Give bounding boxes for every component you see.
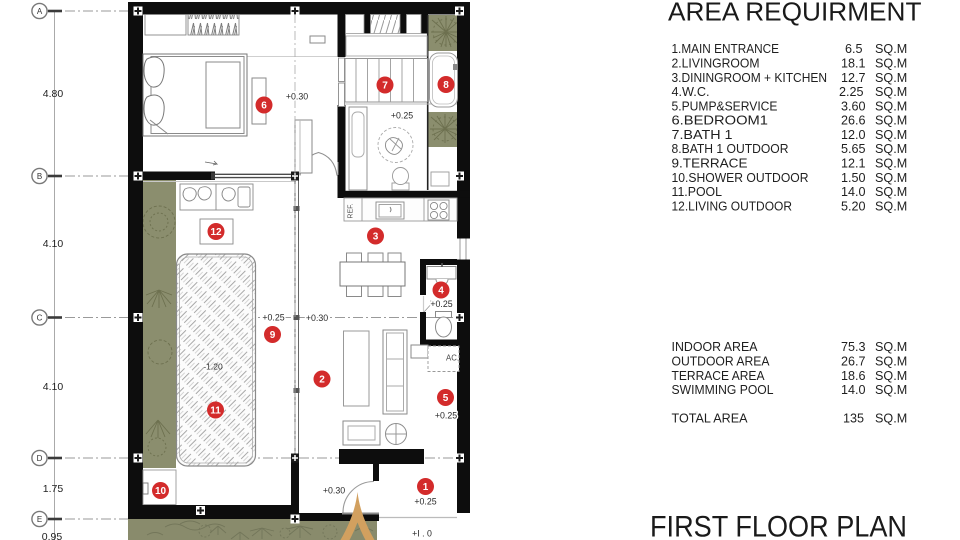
svg-text:18.1: 18.1 xyxy=(841,56,866,70)
svg-text:0.95: 0.95 xyxy=(42,531,63,540)
svg-text:FIRST FLOOR PLAN: FIRST FLOOR PLAN xyxy=(650,511,907,540)
svg-text:SQ.M: SQ.M xyxy=(875,99,907,113)
svg-text:SQ.M: SQ.M xyxy=(875,56,907,70)
svg-text:10.SHOWER OUTDOOR: 10.SHOWER OUTDOOR xyxy=(672,171,809,185)
svg-text:2.LIVINGROOM: 2.LIVINGROOM xyxy=(672,56,760,70)
svg-text:5.65: 5.65 xyxy=(841,142,866,156)
svg-text:5: 5 xyxy=(443,393,449,404)
svg-text:2.25: 2.25 xyxy=(839,85,864,99)
svg-text:14.0: 14.0 xyxy=(841,185,866,199)
svg-text:10: 10 xyxy=(155,486,167,497)
svg-text:6.BEDROOM1: 6.BEDROOM1 xyxy=(672,113,769,127)
svg-text:12.LIVING OUTDOOR: 12.LIVING OUTDOOR xyxy=(672,199,793,213)
svg-text:SQ.M: SQ.M xyxy=(875,128,907,142)
svg-text:A: A xyxy=(37,7,43,16)
svg-text:+0.25: +0.25 xyxy=(430,299,452,309)
svg-text:SQ.M: SQ.M xyxy=(875,42,907,56)
svg-text:7: 7 xyxy=(382,81,388,92)
svg-text:5.PUMP&SERVICE: 5.PUMP&SERVICE xyxy=(672,99,778,113)
svg-text:+0.25: +0.25 xyxy=(435,411,457,421)
svg-text:SQ.M: SQ.M xyxy=(875,171,907,185)
svg-text:D: D xyxy=(37,454,43,463)
svg-text:+0.30: +0.30 xyxy=(323,485,345,495)
svg-text:SQ.M: SQ.M xyxy=(875,383,907,397)
svg-text:12.0: 12.0 xyxy=(841,128,866,142)
svg-text:1.MAIN ENTRANCE: 1.MAIN ENTRANCE xyxy=(672,42,780,56)
svg-text:9.TERRACE: 9.TERRACE xyxy=(672,156,748,170)
svg-text:E: E xyxy=(37,515,42,524)
svg-text:6.5: 6.5 xyxy=(845,42,863,56)
svg-text:14.0: 14.0 xyxy=(841,383,866,397)
svg-text:SQ.M: SQ.M xyxy=(875,156,907,170)
svg-text:3: 3 xyxy=(373,232,379,243)
svg-text:1.75: 1.75 xyxy=(43,483,64,495)
svg-text:2: 2 xyxy=(319,375,325,386)
svg-text:18.6: 18.6 xyxy=(841,369,866,383)
svg-text:SQ.M: SQ.M xyxy=(875,113,907,127)
svg-text:+I . 0: +I . 0 xyxy=(412,529,432,539)
svg-text:3.60: 3.60 xyxy=(841,99,866,113)
svg-text:4.80: 4.80 xyxy=(43,88,64,100)
svg-text:OUTDOOR AREA: OUTDOOR AREA xyxy=(672,354,771,368)
svg-text:SWIMMING POOL: SWIMMING POOL xyxy=(672,383,774,397)
svg-text:12.7: 12.7 xyxy=(841,71,866,85)
svg-text:TOTAL AREA: TOTAL AREA xyxy=(672,412,749,426)
svg-text:SQ.M: SQ.M xyxy=(875,369,907,383)
svg-text:4: 4 xyxy=(438,286,444,297)
svg-text:+0.30: +0.30 xyxy=(306,313,328,323)
svg-text:6: 6 xyxy=(261,101,267,112)
svg-text:C: C xyxy=(37,313,43,322)
svg-text:SQ.M: SQ.M xyxy=(875,354,907,368)
svg-text:7.BATH 1: 7.BATH 1 xyxy=(672,128,733,142)
svg-text:+0.25: +0.25 xyxy=(262,313,284,323)
svg-text:11: 11 xyxy=(210,406,221,417)
svg-text:9: 9 xyxy=(270,330,276,341)
svg-text:4.10: 4.10 xyxy=(43,381,64,393)
svg-text:1: 1 xyxy=(423,482,429,493)
svg-text:4.W.C.: 4.W.C. xyxy=(672,85,710,99)
svg-text:+0.25: +0.25 xyxy=(414,497,436,507)
svg-text:26.7: 26.7 xyxy=(841,354,866,368)
svg-text:-1.20: -1.20 xyxy=(203,362,223,372)
svg-text:AREA REQUIRMENT: AREA REQUIRMENT xyxy=(668,0,922,27)
svg-text:SQ.M: SQ.M xyxy=(875,340,907,354)
svg-text:INDOOR AREA: INDOOR AREA xyxy=(672,340,759,354)
svg-text:135: 135 xyxy=(843,412,864,426)
svg-text:REF.: REF. xyxy=(348,203,355,218)
svg-text:3.DININGROOM + KITCHEN: 3.DININGROOM + KITCHEN xyxy=(672,71,828,85)
svg-text:75.3: 75.3 xyxy=(841,340,866,354)
svg-text:TERRACE AREA: TERRACE AREA xyxy=(672,369,766,383)
svg-text:SQ.M: SQ.M xyxy=(875,142,907,156)
svg-text:12: 12 xyxy=(210,227,222,238)
svg-text:AC.: AC. xyxy=(446,354,459,363)
svg-text:5.20: 5.20 xyxy=(841,199,866,213)
svg-text:SQ.M: SQ.M xyxy=(875,412,907,426)
svg-text:26.6: 26.6 xyxy=(841,113,866,127)
svg-text:11.POOL: 11.POOL xyxy=(672,185,723,199)
svg-text:B: B xyxy=(37,172,42,181)
svg-text:SQ.M: SQ.M xyxy=(875,185,907,199)
svg-text:+0.25: +0.25 xyxy=(391,111,413,121)
svg-text:SQ.M: SQ.M xyxy=(875,85,907,99)
svg-text:4.10: 4.10 xyxy=(43,238,64,250)
svg-text:12.1: 12.1 xyxy=(841,156,866,170)
svg-text:1.50: 1.50 xyxy=(841,171,866,185)
svg-text:8.BATH 1 OUTDOOR: 8.BATH 1 OUTDOOR xyxy=(672,142,789,156)
svg-text:+0.30: +0.30 xyxy=(286,92,308,102)
svg-text:SQ.M: SQ.M xyxy=(875,71,907,85)
svg-text:SQ.M: SQ.M xyxy=(875,199,907,213)
svg-text:8: 8 xyxy=(443,80,449,91)
